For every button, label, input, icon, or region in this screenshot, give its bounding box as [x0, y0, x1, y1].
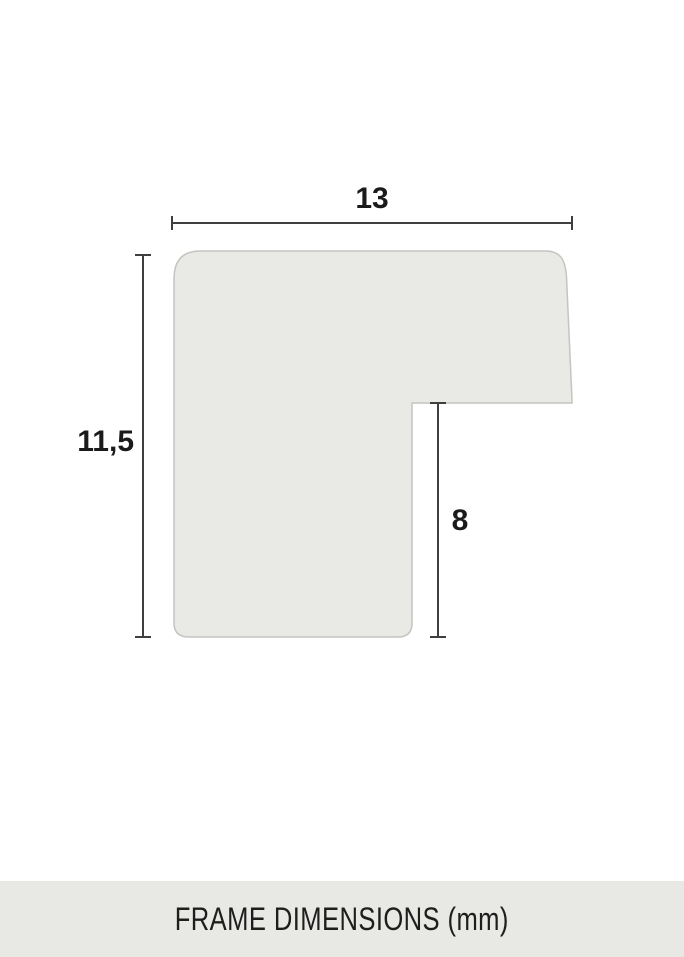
height-dimension-label: 11,5	[36, 427, 134, 457]
depth-dimension-label: 8	[446, 506, 474, 536]
height-dimension-line	[135, 255, 151, 637]
width-dimension-label: 13	[312, 184, 432, 214]
width-dimension-line	[172, 216, 572, 230]
depth-dimension-line	[430, 403, 446, 637]
frame-profile-shape	[174, 251, 572, 637]
frame-dimension-diagram: 13 11,5 8	[0, 0, 684, 957]
footer-bar: FRAME DIMENSIONS (mm)	[0, 881, 684, 957]
footer-caption: FRAME DIMENSIONS (mm)	[175, 901, 509, 938]
